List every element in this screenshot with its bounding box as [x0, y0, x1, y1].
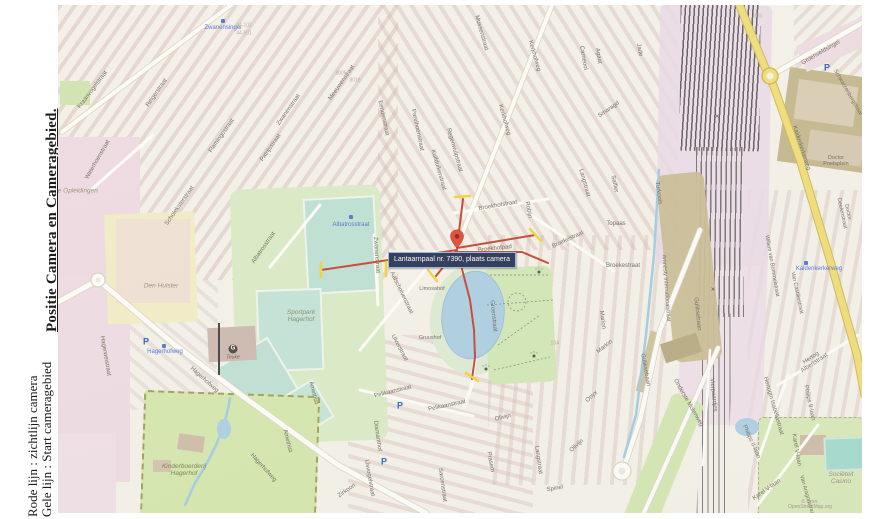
scanned-camera-position-document: Positie Camera en Cameragebied. Rode lij… — [0, 0, 877, 519]
camera-location-tooltip: Lantaarnpaal nr. 7390, plaats camera — [388, 252, 516, 268]
camera-area-start-yellow — [321, 196, 541, 381]
legend-yellow-line: Gele lijn : Start cameragebied — [39, 362, 55, 517]
map-canvas: KraanvogelstraatWaterhoenstraatReigerstr… — [58, 5, 862, 513]
camera-pin-icon — [449, 229, 465, 249]
sightline-red — [321, 199, 548, 379]
